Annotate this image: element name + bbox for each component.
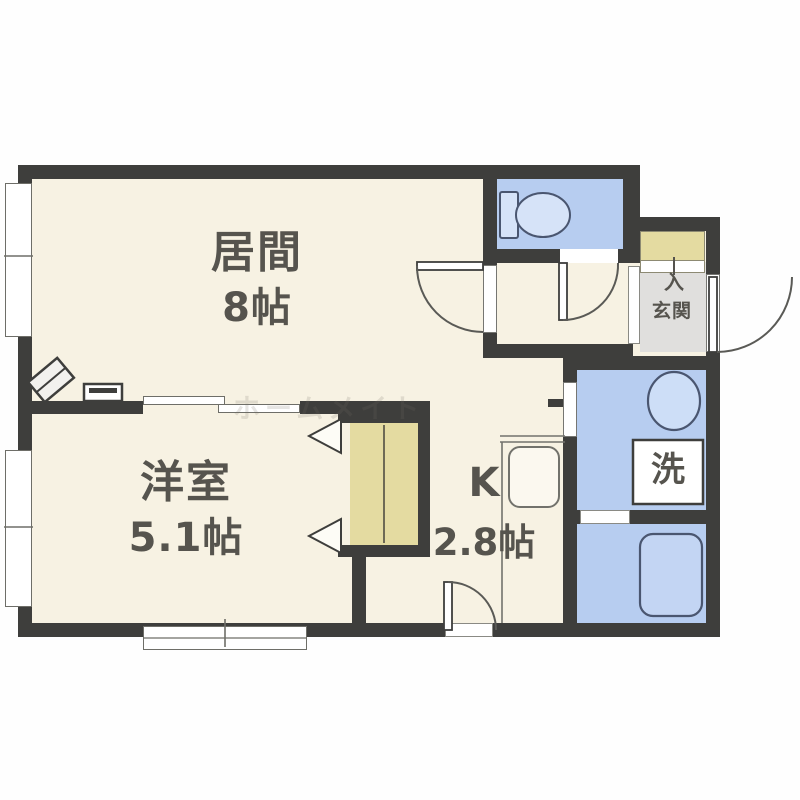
label-entrance: 玄関 [636,301,708,323]
room-area: 8帖 [141,285,373,331]
toilet-bowl-icon [516,193,570,237]
door-swing-arc [563,263,618,320]
door-swing-arc [417,266,483,332]
watermark: ホームメイト [233,387,573,426]
label-kitchen: K 2.8帖 [404,460,564,565]
room-name: 居間 [141,228,373,279]
entry-mark: 入 [660,271,688,294]
room-area: 5.1帖 [71,515,301,561]
door-leaf-toilet [559,263,567,320]
closet-door-chevron [309,519,341,553]
washing-machine-mark: 洗 [633,451,703,490]
bathtub-icon [640,534,702,616]
room-area: 2.8帖 [404,522,564,565]
heater-icon [28,358,74,402]
door-leaf-kitchen [444,582,452,630]
floor-plan: 居間 8帖 洋室 5.1帖 K 2.8帖 玄関 入 洗 ホームメイト [0,0,800,800]
door-swing-arc [717,277,792,352]
label-western-room: 洋室 5.1帖 [71,458,301,561]
door-leaf-entry [709,277,717,352]
door-swing-arc [448,582,496,630]
room-name: K [404,460,564,506]
wash-basin-icon [648,372,700,430]
door-leaf-living [417,262,483,270]
room-name: 洋室 [71,458,301,509]
cabinet-icon [84,384,122,401]
label-living-room: 居間 8帖 [141,228,373,331]
